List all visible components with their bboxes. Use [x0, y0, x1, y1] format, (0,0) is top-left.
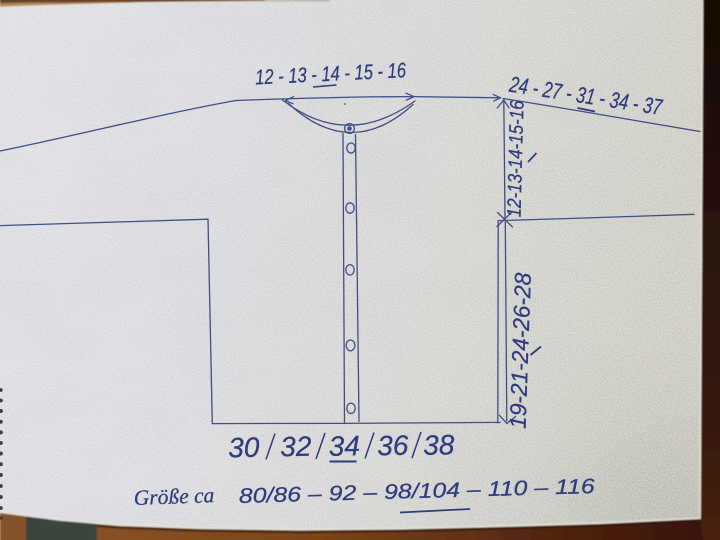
- svg-text:30: 30: [228, 432, 260, 464]
- svg-text:12-13-14-15-16: 12-13-14-15-16: [504, 100, 529, 218]
- svg-text:32: 32: [280, 431, 312, 463]
- svg-text:34: 34: [328, 430, 360, 462]
- svg-text:Größe ca: Größe ca: [133, 483, 214, 510]
- svg-text:19-21-24-26-28: 19-21-24-26-28: [505, 272, 536, 429]
- svg-text:36: 36: [377, 430, 409, 462]
- svg-text:38: 38: [423, 429, 455, 461]
